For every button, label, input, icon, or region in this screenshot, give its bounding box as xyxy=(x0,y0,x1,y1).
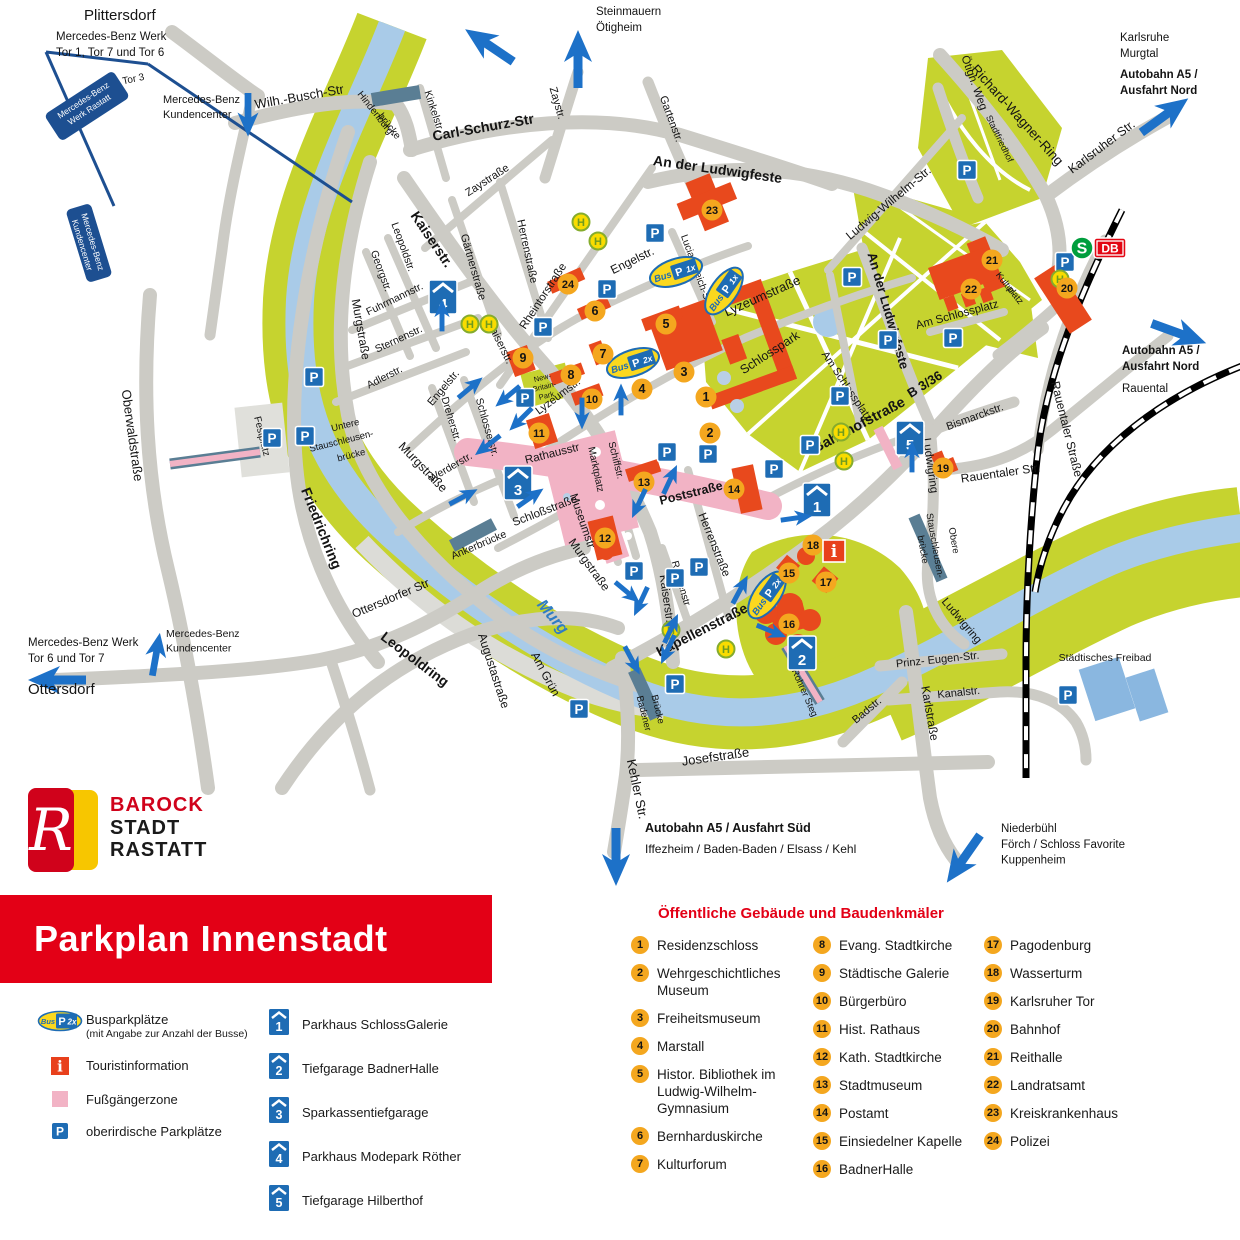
building-label: Evang. Stadtkirche xyxy=(839,936,952,954)
building-item-13: 13 Stadtmuseum xyxy=(813,1076,978,1094)
svg-text:P: P xyxy=(1060,255,1069,270)
parking-p-icon: P xyxy=(666,569,685,588)
bus-stop-h-icon: H xyxy=(833,424,850,441)
destination-label: Mercedes-Benz xyxy=(166,628,240,640)
svg-text:P: P xyxy=(602,282,611,297)
building-number: 19 xyxy=(984,992,1002,1010)
destination-label: Karlsruhe xyxy=(1120,32,1169,44)
svg-text:P: P xyxy=(650,226,659,241)
poi-marker-16: 16 xyxy=(779,614,800,635)
svg-text:3: 3 xyxy=(276,1108,283,1122)
info-icon: i xyxy=(34,1056,86,1076)
destination-label: Tor 1, Tor 7 und Tor 6 xyxy=(56,47,164,59)
svg-text:5: 5 xyxy=(663,317,670,331)
parkplan-poster: Wilh.-Busch-StrHindenburg-brückeCarl-Sch… xyxy=(0,0,1240,1240)
building-item-2: 2 Wehrgeschichtliches Museum xyxy=(631,964,806,999)
building-number: 10 xyxy=(813,992,831,1010)
poi-marker-6: 6 xyxy=(585,301,606,322)
building-number: 3 xyxy=(631,1009,649,1027)
building-number: 21 xyxy=(984,1048,1002,1066)
building-number: 22 xyxy=(984,1076,1002,1094)
svg-text:4: 4 xyxy=(639,382,646,396)
building-item-11: 11 Hist. Rathaus xyxy=(813,1020,978,1038)
svg-text:P: P xyxy=(962,163,971,178)
parking-p-icon: P xyxy=(516,389,535,408)
parking-p-icon: P xyxy=(879,331,898,350)
building-item-1: 1 Residenzschloss xyxy=(631,936,806,954)
street-label: Städtisches Freibad xyxy=(1059,652,1152,664)
direction-arrow xyxy=(564,30,592,88)
svg-text:5: 5 xyxy=(276,1196,283,1210)
building-label: Residenzschloss xyxy=(657,936,758,954)
svg-text:21: 21 xyxy=(986,255,998,267)
city-map: Wilh.-Busch-StrHindenburg-brückeCarl-Sch… xyxy=(0,0,1240,900)
parkhaus-legend: 1 Parkhaus SchlossGalerie 2 Tiefgarage B… xyxy=(268,1008,518,1228)
parking-p-icon: P xyxy=(944,329,963,348)
building-label: Landratsamt xyxy=(1010,1076,1085,1094)
destination-label: Förch / Schloss Favorite xyxy=(1001,839,1125,851)
building-item-22: 22 Landratsamt xyxy=(984,1076,1174,1094)
building-item-4: 4 Marstall xyxy=(631,1037,806,1055)
svg-text:15: 15 xyxy=(783,568,795,580)
building-label: Kreiskrankenhaus xyxy=(1010,1104,1118,1122)
parking-p-icon: P xyxy=(699,445,718,464)
svg-text:P: P xyxy=(769,462,778,477)
svg-text:H: H xyxy=(577,217,585,229)
building-label: Städtische Galerie xyxy=(839,964,949,982)
destination-label: Ausfahrt Nord xyxy=(1120,85,1197,97)
svg-text:P: P xyxy=(670,677,679,692)
building-number: 15 xyxy=(813,1132,831,1150)
building-number: 23 xyxy=(984,1104,1002,1122)
parking-p-icon: P xyxy=(765,460,784,479)
poi-marker-22: 22 xyxy=(961,279,982,300)
svg-text:3: 3 xyxy=(514,482,522,499)
parking-p-icon: P xyxy=(843,268,862,287)
destination-label: Niederbühl xyxy=(1001,823,1057,835)
legend-symbol-sublabel: (mit Angabe zur Anzahl der Busse) xyxy=(86,1027,248,1042)
emblem-monogram: R xyxy=(28,796,73,864)
building-number: 18 xyxy=(984,964,1002,982)
svg-text:6: 6 xyxy=(592,304,599,318)
title-banner: Parkplan Innenstadt xyxy=(0,895,492,983)
building-number: 20 xyxy=(984,1020,1002,1038)
destination-label: Ausfahrt Nord xyxy=(1122,361,1199,373)
destination-label: Autobahn A5 / Ausfahrt Süd xyxy=(645,821,811,835)
parkhaus-label: Tiefgarage Hilberthof xyxy=(302,1193,423,1208)
svg-text:P: P xyxy=(574,702,583,717)
building-label: Wehrgeschichtliches Museum xyxy=(657,964,806,999)
destination-label: Rauental xyxy=(1122,383,1168,395)
destination-label: Mercedes-Benz Werk xyxy=(56,31,167,43)
building-label: Wasserturm xyxy=(1010,964,1082,982)
svg-text:18: 18 xyxy=(807,540,819,552)
parkhaus-legend-item-3: 3 Sparkassentiefgarage xyxy=(268,1096,518,1129)
building-label: Einsiedelner Kapelle xyxy=(839,1132,962,1150)
poi-marker-20: 20 xyxy=(1057,278,1078,299)
building-label: Histor. Bibliothek im Ludwig-Wilhelm-Gym… xyxy=(657,1065,806,1117)
svg-text:P: P xyxy=(267,431,276,446)
building-label: Bernharduskirche xyxy=(657,1127,763,1145)
parkhaus-legend-item-2: 2 Tiefgarage BadnerHalle xyxy=(268,1052,518,1085)
parkhaus-label: Tiefgarage BadnerHalle xyxy=(302,1061,439,1076)
parking-p-icon: P xyxy=(1056,253,1075,272)
building-number: 4 xyxy=(631,1037,649,1055)
svg-text:1: 1 xyxy=(813,499,821,516)
poi-marker-4: 4 xyxy=(632,379,653,400)
svg-text:13: 13 xyxy=(638,477,650,489)
svg-text:P: P xyxy=(58,1016,65,1028)
building-number: 6 xyxy=(631,1127,649,1145)
svg-text:H: H xyxy=(485,319,493,331)
buildings-legend: Öffentliche Gebäude und Baudenkmäler 1 R… xyxy=(630,905,1230,936)
poi-marker-1: 1 xyxy=(696,387,717,408)
svg-text:Bus: Bus xyxy=(41,1017,55,1026)
legend-symbol-label: Busparkplätze(mit Angabe zur Anzahl der … xyxy=(86,1010,248,1042)
parkhaus-label: Parkhaus SchlossGalerie xyxy=(302,1017,448,1032)
street-label: Zaystr. xyxy=(547,86,568,121)
legend-symbol-p-square: P oberirdische Parkplätze xyxy=(34,1122,284,1140)
building-number: 8 xyxy=(813,936,831,954)
parkhaus-icon: 3 xyxy=(268,1096,302,1129)
db-icon: DB xyxy=(1094,238,1126,258)
parking-p-icon: P xyxy=(296,427,315,446)
building-label: Kulturforum xyxy=(657,1155,727,1173)
svg-text:24: 24 xyxy=(562,279,575,291)
svg-text:P: P xyxy=(1063,688,1072,703)
building-number: 11 xyxy=(813,1020,831,1038)
plant-boxes: Mercedes-BenzWerk RastattMercedes-BenzKu… xyxy=(44,70,130,283)
building-item-3: 3 Freiheitsmuseum xyxy=(631,1009,806,1027)
svg-text:2: 2 xyxy=(798,652,806,669)
poi-marker-11: 11 xyxy=(529,423,550,444)
parkhaus-icon-1: 1 xyxy=(803,483,831,517)
legend-symbol-pink-square: Fußgängerzone xyxy=(34,1090,284,1108)
svg-text:1: 1 xyxy=(276,1020,283,1034)
svg-text:3: 3 xyxy=(681,365,688,379)
svg-text:P: P xyxy=(948,331,957,346)
destination-label: Murgtal xyxy=(1120,48,1158,60)
poi-marker-21: 21 xyxy=(982,250,1003,271)
svg-text:P: P xyxy=(694,560,703,575)
parkhaus-icon-2: 2 xyxy=(788,636,816,670)
building-label: Freiheitsmuseum xyxy=(657,1009,761,1027)
building-item-12: 12 Kath. Stadtkirche xyxy=(813,1048,978,1066)
sbahn-icon: S xyxy=(1071,237,1093,259)
building-item-10: 10 Bürgerbüro xyxy=(813,992,978,1010)
destination-label: Kundencenter xyxy=(166,642,232,654)
building-item-9: 9 Städtische Galerie xyxy=(813,964,978,982)
building-label: Reithalle xyxy=(1010,1048,1063,1066)
bus-stop-h-icon: H xyxy=(836,453,853,470)
building-number: 16 xyxy=(813,1160,831,1178)
building-number: 2 xyxy=(631,964,649,982)
parking-p-icon: P xyxy=(958,161,977,180)
bus-stop-h-icon: H xyxy=(462,316,479,333)
building-item-24: 24 Polizei xyxy=(984,1132,1174,1150)
poi-marker-17: 17 xyxy=(816,572,837,593)
building-number: 17 xyxy=(984,936,1002,954)
legend-symbols: Bus P 2x Busparkplätze(mit Angabe zur An… xyxy=(34,1010,284,1154)
pink-square-icon xyxy=(34,1090,86,1108)
destination-label: Kundencenter xyxy=(163,109,232,121)
poi-marker-12: 12 xyxy=(595,528,616,549)
svg-text:9: 9 xyxy=(520,351,527,365)
poi-marker-14: 14 xyxy=(724,479,745,500)
street-label: Tor 3 xyxy=(121,72,145,87)
destination-label: Iffezheim / Baden-Baden / Elsass / Kehl xyxy=(645,842,856,856)
svg-text:11: 11 xyxy=(533,428,545,440)
poi-marker-10: 10 xyxy=(582,389,603,410)
bus-stop-h-icon: H xyxy=(481,316,498,333)
building-label: Karlsruher Tor xyxy=(1010,992,1095,1010)
destination-label: Mercedes-Benz Werk xyxy=(28,637,139,649)
svg-text:S: S xyxy=(1077,241,1088,258)
logo-line-2: STADT xyxy=(110,817,207,840)
building-item-23: 23 Kreiskrankenhaus xyxy=(984,1104,1174,1122)
parkhaus-label: Parkhaus Modepark Röther xyxy=(302,1149,461,1164)
destination-label: Plittersdorf xyxy=(84,7,157,24)
logo-line-3: RASTATT xyxy=(110,839,207,862)
building-label: Postamt xyxy=(839,1104,889,1122)
svg-text:4: 4 xyxy=(276,1152,283,1166)
destination-label: Ötigheim xyxy=(596,22,642,34)
svg-text:20: 20 xyxy=(1061,283,1073,295)
parking-p-icon: P xyxy=(263,429,282,448)
street-label: Obere xyxy=(946,527,961,555)
parking-p-icon: P xyxy=(801,436,820,455)
bus-oval-icon: Bus P 2x xyxy=(34,1010,86,1032)
building-item-18: 18 Wasserturm xyxy=(984,964,1174,982)
svg-text:P: P xyxy=(300,429,309,444)
parking-p-icon: P xyxy=(658,443,677,462)
poi-marker-24: 24 xyxy=(558,274,579,295)
building-number: 14 xyxy=(813,1104,831,1122)
direction-arrow xyxy=(602,828,630,886)
svg-text:H: H xyxy=(722,644,730,656)
svg-text:2: 2 xyxy=(707,426,714,440)
parkhaus-legend-item-4: 4 Parkhaus Modepark Röther xyxy=(268,1140,518,1173)
freibad-buildings xyxy=(1079,657,1169,722)
svg-text:i: i xyxy=(831,542,838,562)
building-number: 1 xyxy=(631,936,649,954)
legend-symbol-bus-oval: Bus P 2x Busparkplätze(mit Angabe zur An… xyxy=(34,1010,284,1042)
svg-text:H: H xyxy=(594,236,602,248)
bus-stop-h-icon: H xyxy=(590,233,607,250)
buildings-column-2: 8 Evang. Stadtkirche9 Städtische Galerie… xyxy=(813,936,978,1188)
parkhaus-icon: 4 xyxy=(268,1140,302,1173)
building-item-17: 17 Pagodenburg xyxy=(984,936,1174,954)
parkhaus-legend-item-1: 1 Parkhaus SchlossGalerie xyxy=(268,1008,518,1041)
svg-text:H: H xyxy=(466,319,474,331)
poi-marker-9: 9 xyxy=(513,348,534,369)
mercedes-plant-box: Mercedes-BenzKundencenter xyxy=(65,203,112,283)
parking-p-icon: P xyxy=(570,700,589,719)
poi-marker-15: 15 xyxy=(779,563,800,584)
building-label: Bahnhof xyxy=(1010,1020,1060,1038)
p-square-icon: P xyxy=(34,1122,86,1140)
building-number: 9 xyxy=(813,964,831,982)
parking-p-icon: P xyxy=(831,387,850,406)
svg-text:1: 1 xyxy=(703,390,710,404)
svg-text:P: P xyxy=(847,270,856,285)
svg-text:H: H xyxy=(840,456,848,468)
page-title: Parkplan Innenstadt xyxy=(0,918,388,960)
parking-p-icon: P xyxy=(598,280,617,299)
buildings-column-1: 1 Residenzschloss2 Wehrgeschichtliches M… xyxy=(631,936,806,1183)
svg-text:DB: DB xyxy=(1101,242,1119,256)
hindenburgbruecke xyxy=(372,92,420,100)
svg-text:P: P xyxy=(662,445,671,460)
building-item-5: 5 Histor. Bibliothek im Ludwig-Wilhelm-G… xyxy=(631,1065,806,1117)
building-item-21: 21 Reithalle xyxy=(984,1048,1174,1066)
building-label: Marstall xyxy=(657,1037,704,1055)
buildings-legend-heading: Öffentliche Gebäude und Baudenkmäler xyxy=(658,905,1230,922)
building-label: Bürgerbüro xyxy=(839,992,907,1010)
parkhaus-icon-3: 3 xyxy=(504,466,532,500)
bus-stop-h-icon: H xyxy=(573,214,590,231)
parkhaus-legend-item-5: 5 Tiefgarage Hilberthof xyxy=(268,1184,518,1217)
street-label: Engelstr. xyxy=(608,244,656,277)
svg-text:22: 22 xyxy=(965,284,977,296)
buildings-column-3: 17 Pagodenburg18 Wasserturm19 Karlsruher… xyxy=(984,936,1174,1160)
poi-marker-5: 5 xyxy=(656,314,677,335)
destination-label: Ottersdorf xyxy=(28,681,96,698)
bus-stop-h-icon: H xyxy=(718,641,735,658)
poi-marker-3: 3 xyxy=(674,362,695,383)
svg-text:P: P xyxy=(805,438,814,453)
building-item-15: 15 Einsiedelner Kapelle xyxy=(813,1132,978,1150)
logo-text: BAROCK STADT RASTATT xyxy=(110,788,207,862)
svg-text:2: 2 xyxy=(276,1064,283,1078)
svg-text:12: 12 xyxy=(599,533,611,545)
svg-text:2x: 2x xyxy=(67,1018,77,1027)
svg-text:P: P xyxy=(309,370,318,385)
building-number: 7 xyxy=(631,1155,649,1173)
destination-label: Tor 6 und Tor 7 xyxy=(28,653,105,665)
parking-p-icon: P xyxy=(625,562,644,581)
legend-symbol-label: Touristinformation xyxy=(86,1056,189,1073)
svg-text:H: H xyxy=(837,427,845,439)
svg-text:P: P xyxy=(670,571,679,586)
poi-marker-7: 7 xyxy=(593,344,614,365)
barock-emblem: R xyxy=(28,788,100,872)
building-label: BadnerHalle xyxy=(839,1160,913,1178)
svg-text:P: P xyxy=(56,1125,64,1139)
svg-text:P: P xyxy=(520,391,529,406)
legend-symbol-info: i Touristinformation xyxy=(34,1056,284,1076)
building-number: 5 xyxy=(631,1065,649,1083)
building-label: Kath. Stadtkirche xyxy=(839,1048,942,1066)
parking-p-icon: P xyxy=(1059,686,1078,705)
legend-symbol-label: oberirdische Parkplätze xyxy=(86,1122,222,1139)
svg-text:16: 16 xyxy=(783,619,795,631)
building-label: Polizei xyxy=(1010,1132,1050,1150)
building-label: Stadtmuseum xyxy=(839,1076,922,1094)
building-label: Pagodenburg xyxy=(1010,936,1091,954)
destination-label: Autobahn A5 / xyxy=(1122,345,1200,357)
parking-p-icon: P xyxy=(646,224,665,243)
svg-text:P: P xyxy=(538,320,547,335)
svg-text:14: 14 xyxy=(728,484,741,496)
destination-label: Steinmauern xyxy=(596,6,661,18)
parking-p-icon: P xyxy=(534,318,553,337)
svg-text:P: P xyxy=(883,333,892,348)
poi-marker-19: 19 xyxy=(933,458,954,479)
svg-text:P: P xyxy=(835,389,844,404)
parkhaus-icon: 5 xyxy=(268,1184,302,1217)
building-item-14: 14 Postamt xyxy=(813,1104,978,1122)
building-number: 24 xyxy=(984,1132,1002,1150)
svg-text:10: 10 xyxy=(586,394,598,406)
building-item-19: 19 Karlsruher Tor xyxy=(984,992,1174,1010)
poi-marker-18: 18 xyxy=(803,535,824,556)
svg-text:23: 23 xyxy=(706,205,718,217)
svg-text:8: 8 xyxy=(568,368,575,382)
svg-text:19: 19 xyxy=(937,463,949,475)
direction-arrow xyxy=(457,18,521,74)
building-number: 13 xyxy=(813,1076,831,1094)
destination-label: Autobahn A5 / xyxy=(1120,69,1198,81)
parkhaus-icon: 1 xyxy=(268,1008,302,1041)
svg-text:P: P xyxy=(629,564,638,579)
parking-p-icon: P xyxy=(305,368,324,387)
poi-marker-2: 2 xyxy=(700,423,721,444)
destination-label: Mercedes-Benz xyxy=(163,94,240,106)
svg-text:17: 17 xyxy=(820,577,832,589)
legend-symbol-label: Fußgängerzone xyxy=(86,1090,178,1107)
parking-p-icon: P xyxy=(666,675,685,694)
bus-park-icon: BusP2x xyxy=(603,342,662,383)
poi-marker-23: 23 xyxy=(702,200,723,221)
logo-line-1: BAROCK xyxy=(110,794,207,817)
mercedes-plant-box: Mercedes-BenzWerk Rastatt xyxy=(44,70,130,141)
building-item-7: 7 Kulturforum xyxy=(631,1155,806,1173)
svg-text:P: P xyxy=(703,447,712,462)
building-item-20: 20 Bahnhof xyxy=(984,1020,1174,1038)
building-item-16: 16 BadnerHalle xyxy=(813,1160,978,1178)
tourist-info-icon: i xyxy=(823,540,845,562)
poi-marker-8: 8 xyxy=(561,365,582,386)
svg-text:i: i xyxy=(57,1058,63,1076)
building-item-6: 6 Bernharduskirche xyxy=(631,1127,806,1145)
barock-logo: R BAROCK STADT RASTATT xyxy=(28,788,207,872)
building-item-8: 8 Evang. Stadtkirche xyxy=(813,936,978,954)
svg-text:7: 7 xyxy=(600,347,607,361)
destination-label: Kuppenheim xyxy=(1001,855,1066,867)
parkhaus-label: Sparkassentiefgarage xyxy=(302,1105,428,1120)
building-label: Hist. Rathaus xyxy=(839,1020,920,1038)
parkhaus-icon: 2 xyxy=(268,1052,302,1085)
building-number: 12 xyxy=(813,1048,831,1066)
parking-p-icon: P xyxy=(690,558,709,577)
